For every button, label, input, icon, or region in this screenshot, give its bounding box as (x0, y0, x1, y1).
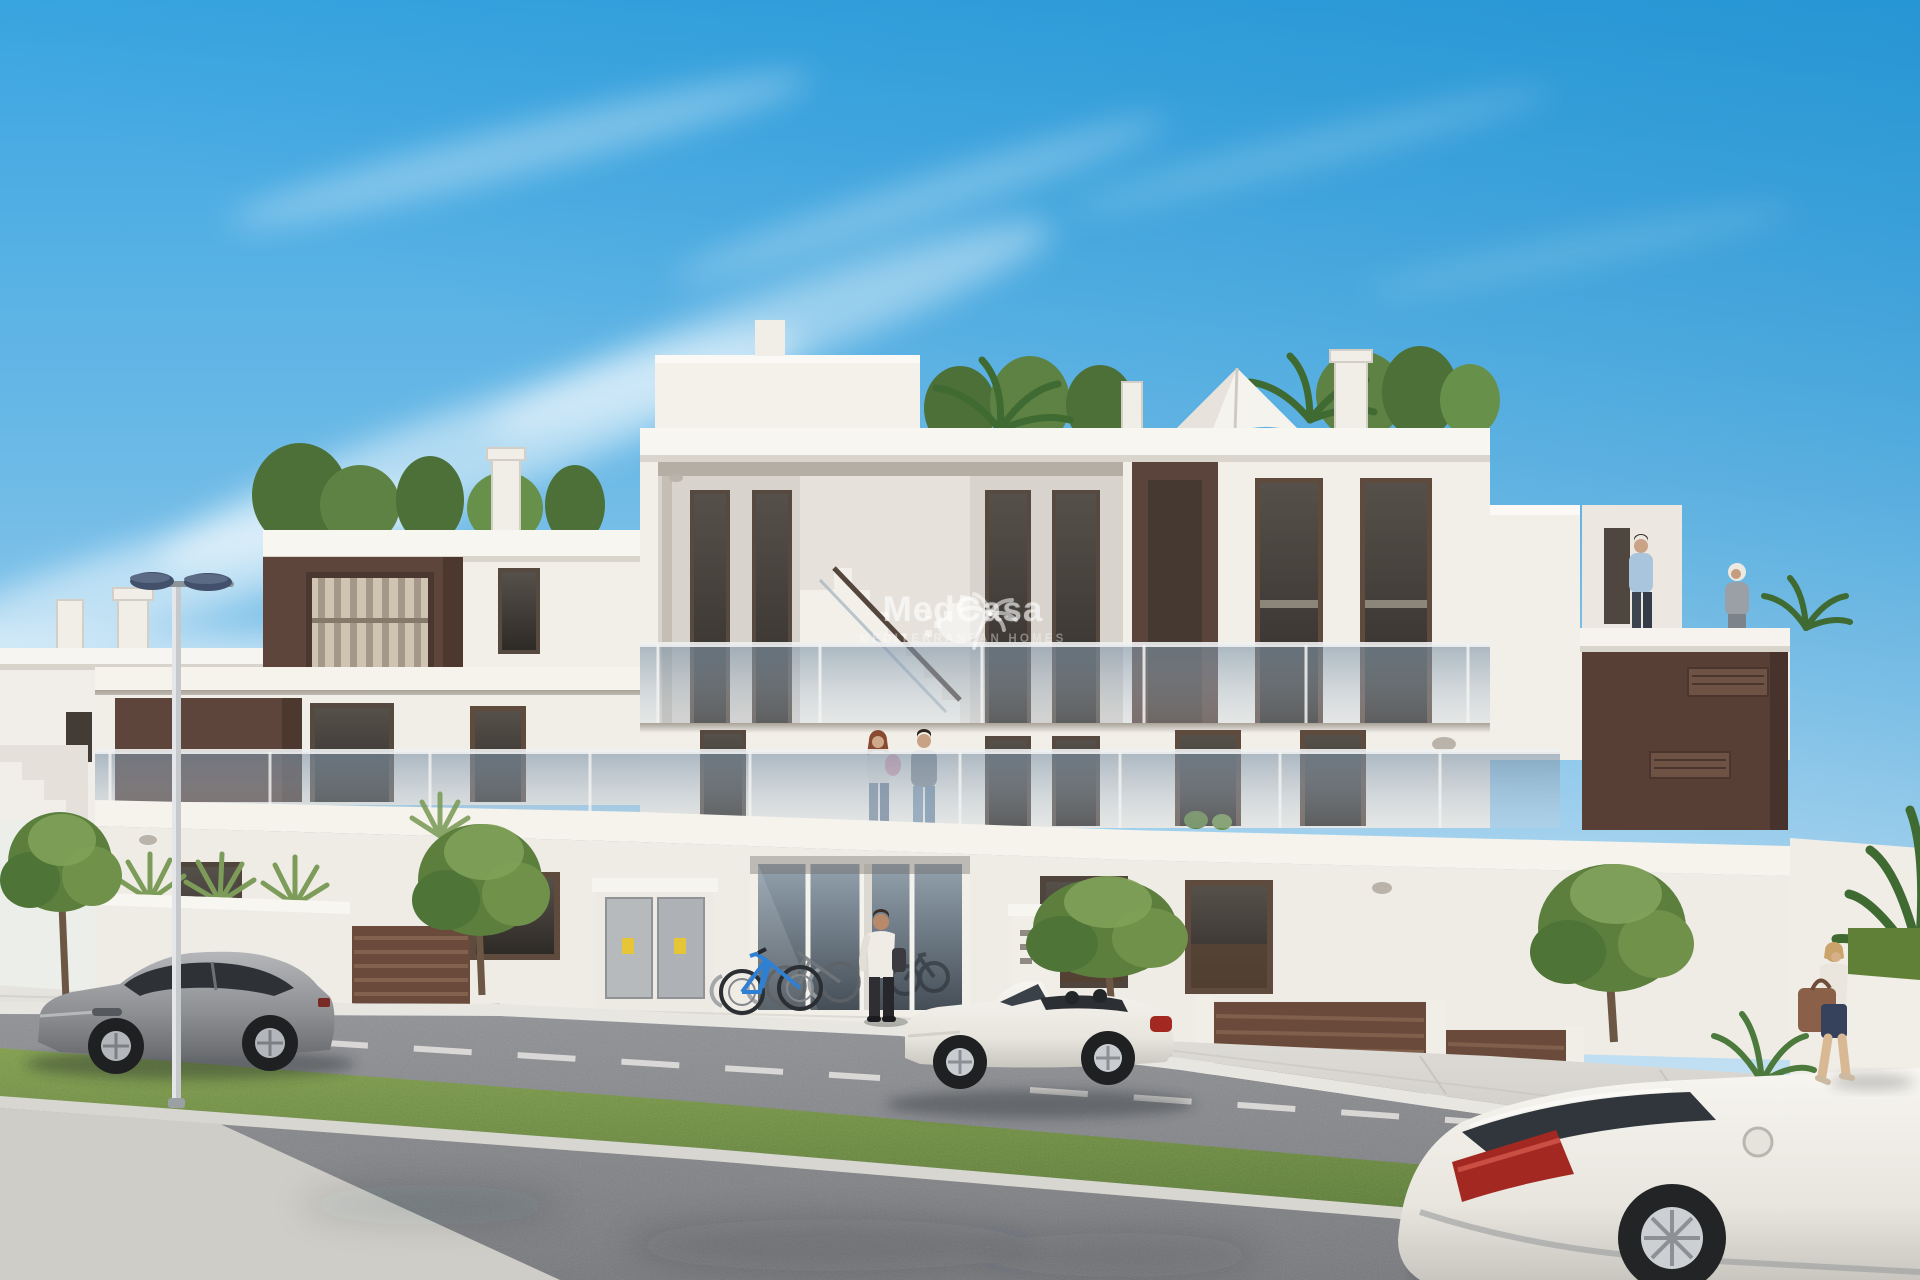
right-brown-panel (1582, 652, 1788, 830)
curtain-window (306, 572, 434, 676)
bag (892, 948, 906, 972)
slatted-gate (352, 926, 470, 1004)
entrance-glazing (750, 856, 970, 1016)
warning-sticker (622, 938, 634, 954)
roof-terrace-woman (1725, 563, 1749, 628)
hedge-grass (1848, 928, 1920, 982)
scene-canvas (0, 0, 1920, 1280)
fuel-cap (1744, 1128, 1772, 1156)
upper-glass-balustrade (640, 642, 1490, 723)
utility-cabinets (592, 878, 718, 1014)
render-scene: MedCasa MEDITERRANEAN HOMES (0, 0, 1920, 1280)
taillight (1150, 1016, 1172, 1032)
right-boundary (1790, 810, 1920, 1104)
taillight (318, 998, 330, 1007)
warning-sticker (674, 938, 686, 954)
